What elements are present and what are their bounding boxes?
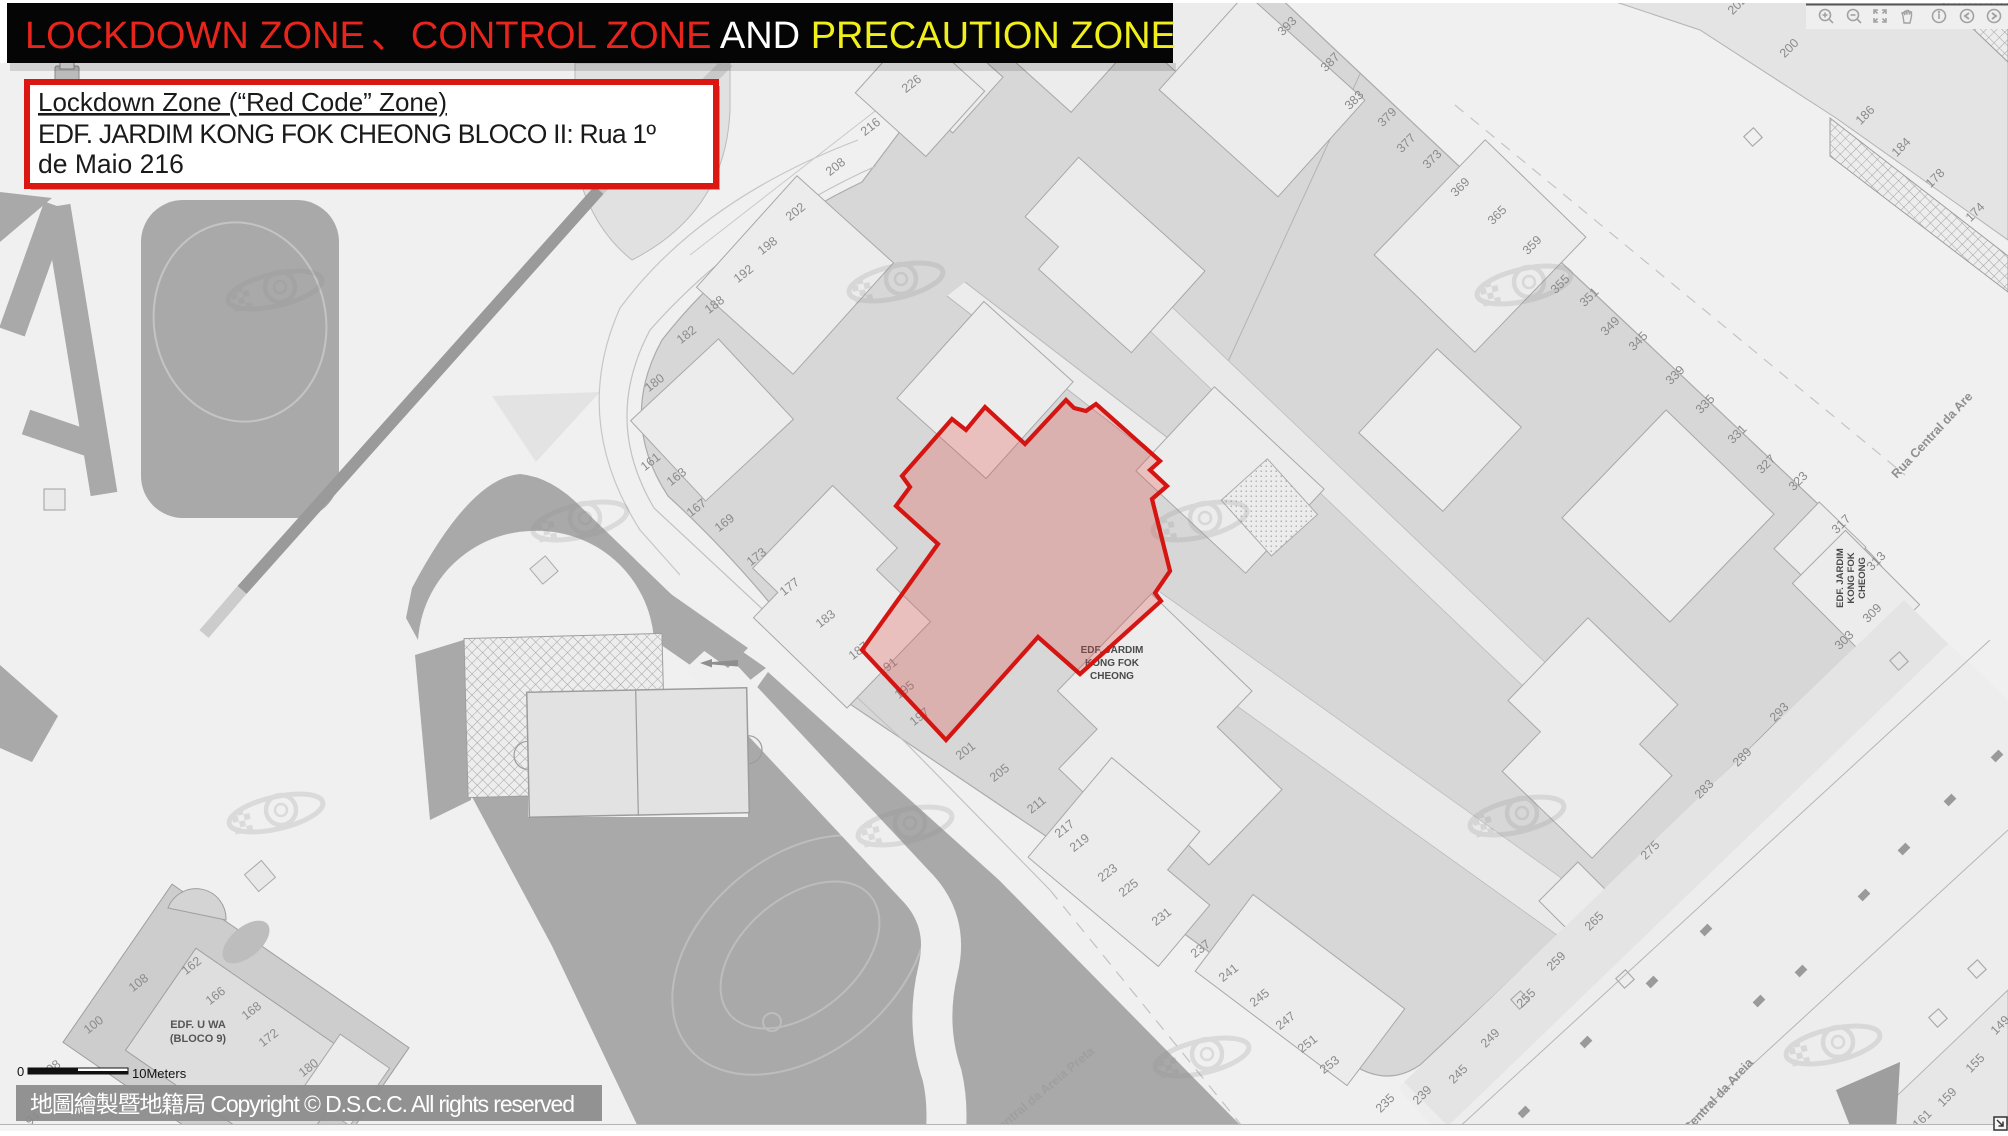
svg-text:de Maio 216: de Maio 216 [38,149,184,179]
svg-text:CHEONG: CHEONG [1090,671,1134,682]
svg-text:地圖繪製暨地籍局 Copyright © D.S.C.C.: 地圖繪製暨地籍局 Copyright © D.S.C.C. All rights… [30,1091,575,1117]
svg-text:EDF. U WA: EDF. U WA [170,1019,226,1031]
svg-text:EDF. JARDIM KONG FOK CHEONG BL: EDF. JARDIM KONG FOK CHEONG BLOCO II: Ru… [38,119,656,149]
svg-text:(BLOCO 9): (BLOCO 9) [170,1033,227,1045]
svg-text:10Meters: 10Meters [132,1066,187,1081]
svg-text:LOCKDOWN ZONE、CONTROL ZONE AND: LOCKDOWN ZONE、CONTROL ZONE AND PRECAUTIO… [25,15,1176,57]
svg-text:CHEONG: CHEONG [1857,557,1868,599]
svg-text:Lockdown Zone (“Red Code” Zone: Lockdown Zone (“Red Code” Zone) [38,87,447,117]
svg-text:EDF. JARDIM: EDF. JARDIM [1835,548,1846,608]
svg-text:0: 0 [17,1064,24,1079]
svg-text:KONG FOK: KONG FOK [1846,552,1857,603]
